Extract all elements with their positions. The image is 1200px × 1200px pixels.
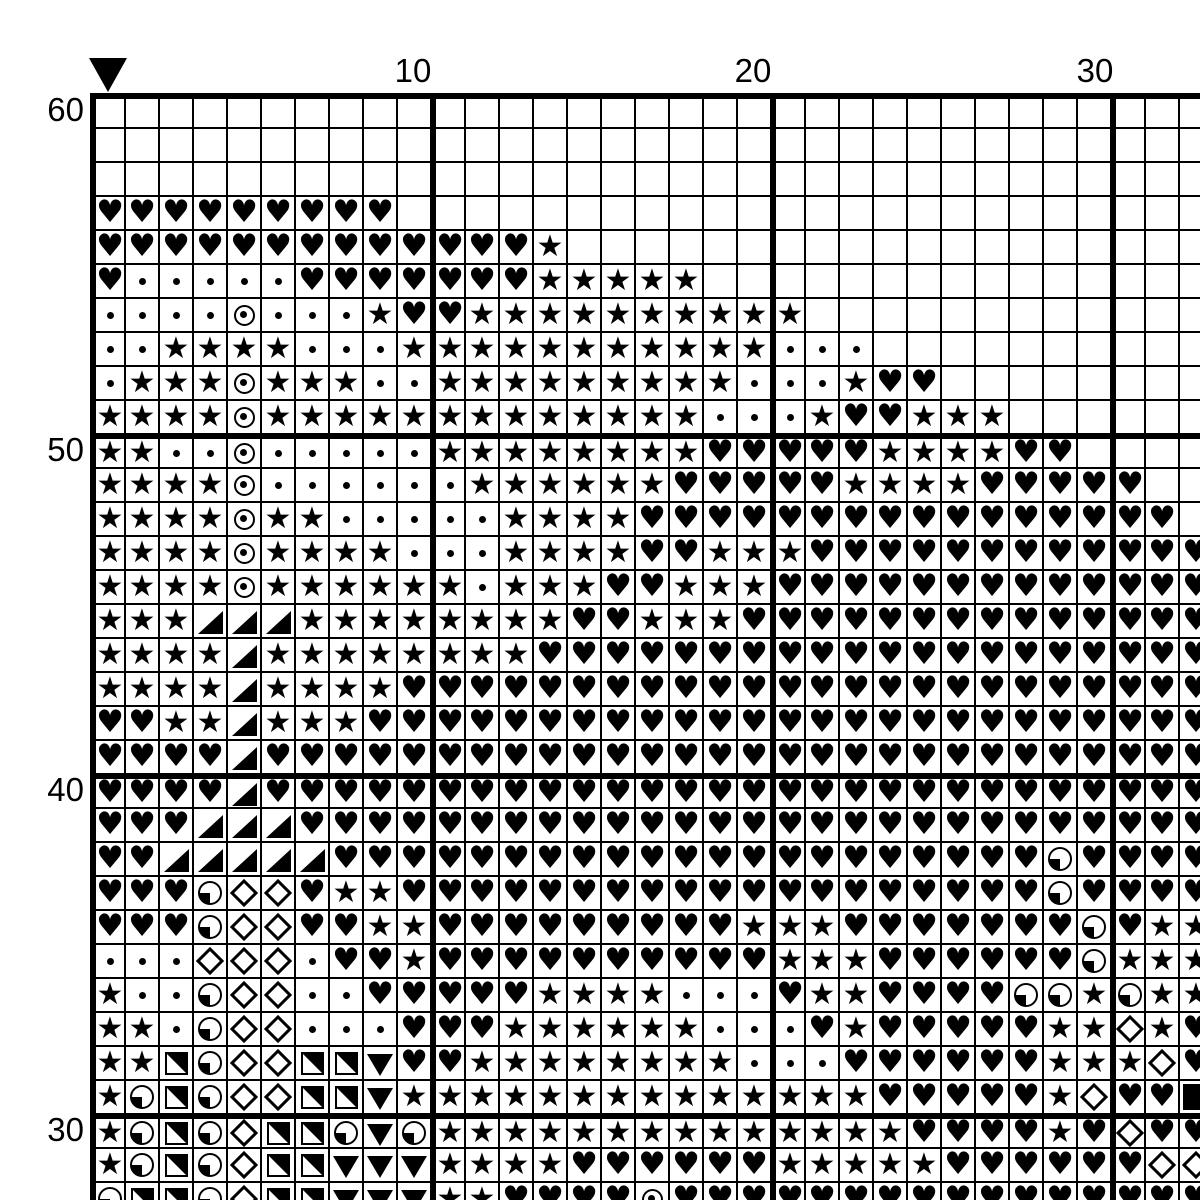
grid-cell [1076, 365, 1110, 399]
heart-symbol: ♥ [264, 777, 292, 807]
grid-cell: ♥ [124, 807, 158, 841]
star-symbol: ★ [197, 708, 224, 738]
grid-cell: ♥ [396, 263, 430, 297]
star-symbol: ★ [503, 640, 530, 670]
heart-symbol: ♥ [128, 707, 156, 737]
grid-cell: ♥ [906, 637, 940, 671]
grid-cell [226, 1011, 260, 1045]
grid-cell: ★ [464, 365, 498, 399]
star-symbol: ★ [673, 402, 700, 432]
grid-cell [1076, 263, 1110, 297]
grid-cell [158, 841, 192, 875]
heart-symbol: ♥ [1182, 1013, 1200, 1043]
heart-symbol: ♥ [332, 945, 360, 975]
grid-cell: ♥ [770, 1181, 804, 1200]
grid-cell: ★ [566, 1113, 600, 1147]
grid-cell: ★ [770, 1147, 804, 1181]
heart-symbol: ♥ [604, 605, 632, 635]
grid-cell: ♥ [634, 875, 668, 909]
heart-symbol: ♥ [740, 777, 768, 807]
grid-cell [294, 1011, 328, 1045]
grid-cell: ♥ [906, 875, 940, 909]
grid-cell: ♥ [1178, 875, 1200, 909]
heart-symbol: ♥ [1080, 1183, 1108, 1200]
grid-cell [1110, 93, 1144, 127]
quarter-circle-lower-left-symbol [1048, 881, 1072, 905]
heart-symbol: ♥ [1080, 777, 1108, 807]
star-symbol: ★ [401, 606, 428, 636]
grid-cell: ♥ [974, 807, 1008, 841]
grid-cell [770, 229, 804, 263]
quarter-circle-lower-left-symbol [1082, 949, 1106, 973]
heart-symbol: ♥ [332, 197, 360, 227]
heart-symbol: ♥ [1012, 741, 1040, 771]
heart-symbol: ♥ [876, 843, 904, 873]
half-square-upper-right-symbol [165, 1122, 188, 1145]
heart-symbol: ♥ [1148, 1081, 1176, 1111]
heart-symbol: ♥ [162, 877, 190, 907]
grid-cell [1042, 331, 1076, 365]
heart-symbol: ♥ [502, 741, 530, 771]
star-symbol: ★ [97, 1118, 124, 1148]
grid-cell: ♥ [702, 637, 736, 671]
star-symbol: ★ [129, 674, 156, 704]
grid-cell [226, 671, 260, 705]
grid-cell [362, 1011, 396, 1045]
grid-cell: ♥ [872, 1011, 906, 1045]
star-symbol: ★ [437, 1082, 464, 1112]
grid-cell [974, 127, 1008, 161]
grid-cell: ★ [532, 1045, 566, 1079]
grid-cell: ♥ [192, 773, 226, 807]
grid-cell: ★ [430, 433, 464, 467]
grid-cell [192, 1147, 226, 1181]
grid-cell [328, 467, 362, 501]
grid-cell [736, 93, 770, 127]
heart-symbol: ♥ [910, 809, 938, 839]
heart-symbol: ♥ [672, 945, 700, 975]
grid-cell [396, 467, 430, 501]
heart-symbol: ♥ [842, 741, 870, 771]
grid-cell: ★ [124, 433, 158, 467]
grid-cell: ★ [294, 399, 328, 433]
grid-cell: ★ [702, 569, 736, 603]
heart-symbol: ♥ [1116, 911, 1144, 941]
grid-cell: ♥ [294, 263, 328, 297]
heart-symbol: ♥ [876, 979, 904, 1009]
grid-cell: ♥ [600, 671, 634, 705]
grid-cell: ♥ [1110, 773, 1144, 807]
grid-cell: ♥ [736, 501, 770, 535]
grid-cell: ♥ [906, 501, 940, 535]
grid-cell: ★ [736, 331, 770, 365]
grid-cell: ★ [702, 603, 736, 637]
heart-symbol: ♥ [1080, 469, 1108, 499]
grid-cell [1076, 943, 1110, 977]
grid-cell: ♥ [1144, 1181, 1178, 1200]
grid-cell [158, 93, 192, 127]
grid-cell [1110, 331, 1144, 365]
grid-cell: ♥ [736, 773, 770, 807]
grid-cell [566, 195, 600, 229]
heart-symbol: ♥ [638, 537, 666, 567]
grid-cell: ♥ [1008, 535, 1042, 569]
heart-symbol: ♥ [944, 911, 972, 941]
grid-cell: ♥ [634, 569, 668, 603]
heart-symbol: ♥ [1046, 1183, 1074, 1200]
grid-cell: ♥ [974, 535, 1008, 569]
grid-cell: ♥ [328, 909, 362, 943]
heart-symbol: ♥ [842, 809, 870, 839]
grid-cell [328, 1181, 362, 1200]
heart-symbol: ♥ [944, 503, 972, 533]
grid-cell [532, 195, 566, 229]
heart-symbol: ♥ [876, 639, 904, 669]
star-symbol: ★ [197, 368, 224, 398]
grid-cell: ★ [838, 943, 872, 977]
grid-cell: ★ [396, 637, 430, 671]
grid-cell [226, 263, 260, 297]
heart-symbol: ♥ [842, 571, 870, 601]
grid-cell [1008, 195, 1042, 229]
grid-cell: ★ [974, 433, 1008, 467]
grid-cell: ♥ [1144, 535, 1178, 569]
grid-cell: ★ [668, 263, 702, 297]
grid-cell: ★ [566, 1011, 600, 1045]
grid-cell [1144, 297, 1178, 331]
dot-symbol [309, 482, 316, 489]
grid-cell: ★ [192, 365, 226, 399]
diamond-outline-symbol [264, 947, 292, 975]
heart-symbol: ♥ [128, 777, 156, 807]
star-symbol: ★ [469, 470, 496, 500]
circle-dot-symbol [234, 475, 255, 496]
grid-cell [260, 807, 294, 841]
grid-cell: ★ [668, 1113, 702, 1147]
grid-cell: ♥ [1008, 807, 1042, 841]
center-marker-icon [89, 58, 127, 92]
grid-cell: ★ [464, 1147, 498, 1181]
heart-symbol: ♥ [978, 741, 1006, 771]
star-symbol: ★ [843, 1082, 870, 1112]
heart-symbol: ♥ [876, 1047, 904, 1077]
star-symbol: ★ [129, 1014, 156, 1044]
grid-cell: ♥ [702, 1181, 736, 1200]
heart-symbol: ♥ [944, 843, 972, 873]
star-symbol: ★ [299, 368, 326, 398]
grid-cell: ♥ [1178, 739, 1200, 773]
heart-symbol: ♥ [1012, 503, 1040, 533]
grid-cell: ♥ [974, 603, 1008, 637]
grid-cell [328, 161, 362, 195]
grid-cell: ♥ [1042, 943, 1076, 977]
grid-cell [226, 1045, 260, 1079]
grid-cell: ♥ [906, 1045, 940, 1079]
grid-cell: ♥ [838, 1045, 872, 1079]
grid-cell: ♥ [498, 841, 532, 875]
row-label-30: 30 [28, 1113, 84, 1147]
heart-symbol: ♥ [978, 1047, 1006, 1077]
heart-symbol: ♥ [706, 1149, 734, 1179]
grid-cell: ♥ [90, 195, 124, 229]
grid-cell [498, 127, 532, 161]
grid-cell: ♥ [838, 807, 872, 841]
star-symbol: ★ [537, 300, 564, 330]
heart-symbol: ♥ [1182, 673, 1200, 703]
grid-cell: ♥ [1076, 807, 1110, 841]
half-square-upper-right-symbol [267, 1154, 290, 1177]
grid-cell: ♥ [838, 773, 872, 807]
star-symbol: ★ [605, 438, 632, 468]
grid-cell: ★ [90, 569, 124, 603]
dot-symbol [447, 516, 454, 523]
heart-symbol: ♥ [400, 299, 428, 329]
star-symbol: ★ [437, 402, 464, 432]
heart-symbol: ♥ [638, 707, 666, 737]
star-symbol: ★ [945, 402, 972, 432]
grid-cell: ★ [192, 501, 226, 535]
grid-cell: ★ [396, 943, 430, 977]
heart-symbol: ♥ [740, 639, 768, 669]
star-symbol: ★ [163, 402, 190, 432]
heart-symbol: ♥ [910, 979, 938, 1009]
grid-cell [464, 195, 498, 229]
grid-cell: ♥ [396, 297, 430, 331]
grid-cell: ★ [770, 535, 804, 569]
grid-cell [328, 1079, 362, 1113]
grid-cell [1008, 127, 1042, 161]
star-symbol: ★ [639, 1082, 666, 1112]
grid-cell: ★ [430, 637, 464, 671]
grid-cell [1110, 229, 1144, 263]
grid-cell: ★ [906, 399, 940, 433]
grid-cell: ♥ [1076, 773, 1110, 807]
star-symbol: ★ [741, 912, 768, 942]
grid-cell: ♥ [1008, 739, 1042, 773]
grid-cell [464, 161, 498, 195]
grid-cell: ♥ [1178, 1181, 1200, 1200]
grid-cell: ♥ [804, 569, 838, 603]
heart-symbol: ♥ [1148, 777, 1176, 807]
grid-cell [770, 195, 804, 229]
heart-symbol: ♥ [502, 945, 530, 975]
diamond-outline-symbol [1116, 1119, 1144, 1147]
star-symbol: ★ [503, 368, 530, 398]
dot-symbol [819, 346, 826, 353]
grid-cell: ★ [192, 467, 226, 501]
grid-cell [362, 1079, 396, 1113]
grid-cell: ★ [804, 1079, 838, 1113]
heart-symbol: ♥ [570, 777, 598, 807]
grid-cell [396, 433, 430, 467]
heart-symbol: ♥ [400, 979, 428, 1009]
dot-symbol [207, 278, 214, 285]
grid-cell: ♥ [566, 1147, 600, 1181]
heart-symbol: ♥ [1148, 741, 1176, 771]
grid-cell: ♥ [362, 263, 396, 297]
grid-cell [328, 1113, 362, 1147]
dot-symbol [275, 482, 282, 489]
star-symbol: ★ [707, 538, 734, 568]
circle-dot-symbol [234, 373, 255, 394]
heart-symbol: ♥ [162, 231, 190, 261]
star-symbol: ★ [333, 640, 360, 670]
dot-symbol [683, 992, 690, 999]
heart-symbol: ♥ [978, 673, 1006, 703]
grid-cell [1008, 229, 1042, 263]
grid-cell [838, 297, 872, 331]
heart-symbol: ♥ [842, 707, 870, 737]
grid-cell: ♥ [464, 1011, 498, 1045]
star-symbol: ★ [265, 368, 292, 398]
heart-symbol: ♥ [332, 809, 360, 839]
quarter-circle-lower-left-symbol [1082, 915, 1106, 939]
star-symbol: ★ [265, 640, 292, 670]
grid-cell: ★ [1076, 1045, 1110, 1079]
grid-cell [1144, 467, 1178, 501]
grid-cell [872, 229, 906, 263]
heart-symbol: ♥ [776, 707, 804, 737]
heart-symbol: ♥ [400, 1013, 428, 1043]
heart-symbol: ♥ [436, 1013, 464, 1043]
grid-cell [396, 1113, 430, 1147]
grid-cell: ★ [566, 1079, 600, 1113]
quarter-circle-lower-left-symbol [1048, 983, 1072, 1007]
grid-cell [736, 127, 770, 161]
quarter-circle-lower-left-symbol [402, 1121, 426, 1145]
star-symbol: ★ [163, 674, 190, 704]
grid-cell [396, 1181, 430, 1200]
star-symbol: ★ [299, 708, 326, 738]
heart-symbol: ♥ [366, 741, 394, 771]
grid-cell [1008, 365, 1042, 399]
heart-symbol: ♥ [536, 777, 564, 807]
grid-cell: ★ [566, 365, 600, 399]
star-symbol: ★ [97, 1048, 124, 1078]
grid-cell [1076, 909, 1110, 943]
grid-cell: ♥ [974, 909, 1008, 943]
star-symbol: ★ [571, 470, 598, 500]
grid-cell: ♥ [1076, 1181, 1110, 1200]
quarter-circle-lower-left-symbol [198, 1051, 222, 1075]
grid-cell: ♥ [940, 569, 974, 603]
grid-cell: ★ [362, 399, 396, 433]
half-square-upper-right-symbol [165, 1052, 188, 1075]
heart-symbol: ♥ [740, 503, 768, 533]
heart-symbol: ♥ [332, 265, 360, 295]
grid-cell: ♥ [736, 433, 770, 467]
grid-cell: ★ [532, 569, 566, 603]
col-label-10: 10 [378, 52, 448, 90]
grid-cell: ♥ [1042, 773, 1076, 807]
grid-cell [260, 1011, 294, 1045]
star-symbol: ★ [571, 538, 598, 568]
grid-cell: ★ [1144, 977, 1178, 1011]
grid-cell: ♥ [906, 535, 940, 569]
heart-symbol: ♥ [1012, 1183, 1040, 1200]
star-symbol: ★ [1081, 980, 1108, 1010]
grid-cell: ♥ [430, 297, 464, 331]
grid-cell: ★ [1042, 1011, 1076, 1045]
grid-cell: ♥ [940, 841, 974, 875]
grid-cell: ♥ [1076, 535, 1110, 569]
grid-cell: ♥ [1076, 875, 1110, 909]
grid-cell [192, 1079, 226, 1113]
grid-cell [294, 1147, 328, 1181]
star-symbol: ★ [1149, 912, 1176, 942]
corner-triangle-lower-right-symbol [232, 713, 257, 736]
grid-cell: ♥ [124, 909, 158, 943]
diamond-outline-symbol [264, 1049, 292, 1077]
star-symbol: ★ [97, 470, 124, 500]
grid-cell: ♥ [90, 229, 124, 263]
heart-symbol: ♥ [1182, 537, 1200, 567]
grid-cell: ♥ [192, 229, 226, 263]
grid-cell [124, 1079, 158, 1113]
heart-symbol: ♥ [196, 197, 224, 227]
heart-symbol: ♥ [298, 809, 326, 839]
grid-cell [1144, 93, 1178, 127]
grid-cell: ♥ [124, 195, 158, 229]
heart-symbol: ♥ [706, 911, 734, 941]
grid-cell [328, 977, 362, 1011]
grid-cell: ♥ [770, 467, 804, 501]
grid-cell: ♥ [158, 773, 192, 807]
star-symbol: ★ [979, 438, 1006, 468]
grid-cell [872, 263, 906, 297]
grid-cell: ♥ [498, 263, 532, 297]
grid-cell [838, 127, 872, 161]
grid-cell: ★ [532, 433, 566, 467]
heart-symbol: ♥ [1080, 843, 1108, 873]
heart-symbol: ♥ [978, 911, 1006, 941]
grid-cell: ♥ [1076, 569, 1110, 603]
heart-symbol: ♥ [944, 1117, 972, 1147]
grid-cell: ♥ [838, 671, 872, 705]
grid-cell: ★ [838, 467, 872, 501]
grid-cell: ♥ [566, 841, 600, 875]
star-symbol: ★ [163, 504, 190, 534]
grid-cell: ★ [362, 909, 396, 943]
grid-cell [226, 1181, 260, 1200]
dot-symbol [343, 450, 350, 457]
grid-cell: ♥ [328, 229, 362, 263]
heart-symbol: ♥ [502, 777, 530, 807]
dot-symbol [717, 414, 724, 421]
star-symbol: ★ [639, 980, 666, 1010]
star-symbol: ★ [469, 1118, 496, 1148]
heart-symbol: ♥ [978, 1117, 1006, 1147]
grid-cell: ★ [702, 1079, 736, 1113]
grid-cell: ★ [192, 671, 226, 705]
grid-cell [226, 841, 260, 875]
grid-cell: ★ [804, 1147, 838, 1181]
grid-cell: ♥ [702, 705, 736, 739]
grid-cell [1110, 1011, 1144, 1045]
grid-cell [260, 263, 294, 297]
grid-cell [226, 569, 260, 603]
heart-symbol: ♥ [1046, 1149, 1074, 1179]
heart-symbol: ♥ [672, 1183, 700, 1200]
grid-cell [668, 127, 702, 161]
heart-symbol: ♥ [638, 877, 666, 907]
star-symbol: ★ [673, 438, 700, 468]
star-symbol: ★ [503, 300, 530, 330]
grid-cell: ♥ [872, 875, 906, 909]
grid-cell: ★ [1178, 909, 1200, 943]
grid-cell: ★ [90, 637, 124, 671]
grid-cell [736, 161, 770, 195]
